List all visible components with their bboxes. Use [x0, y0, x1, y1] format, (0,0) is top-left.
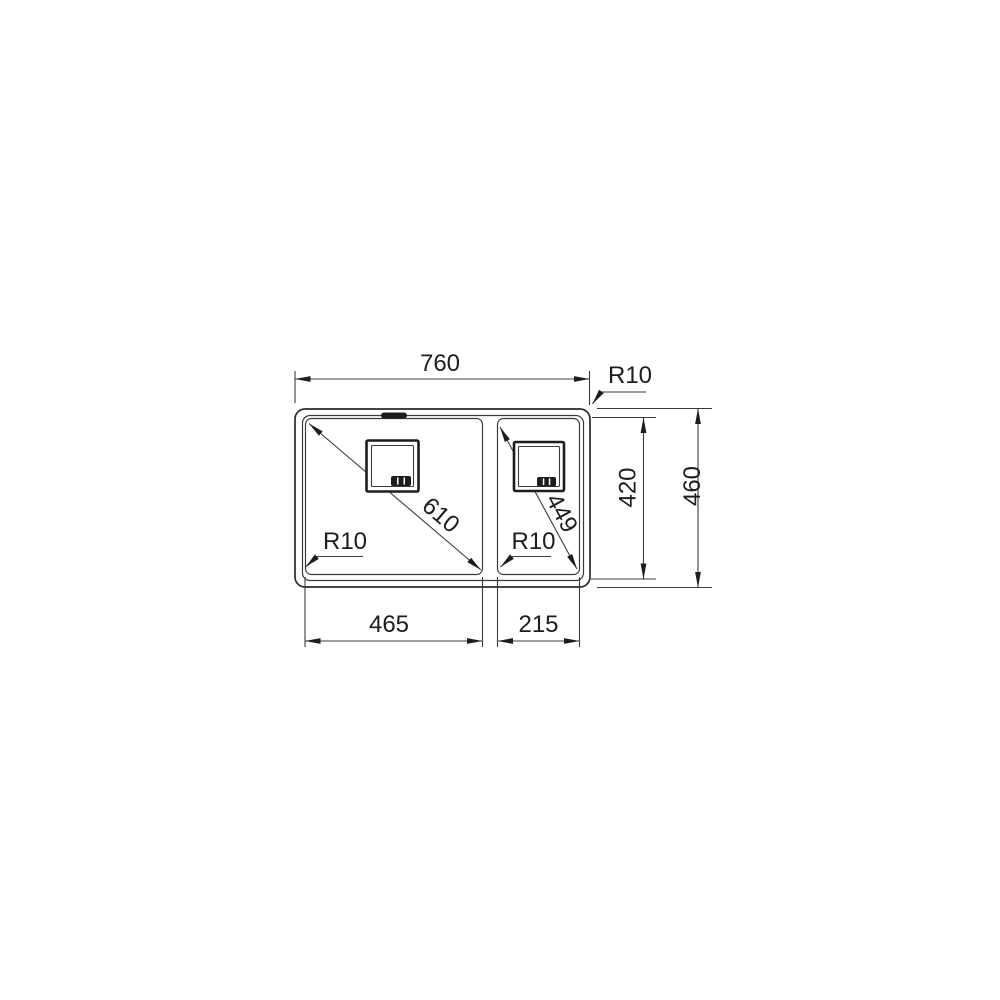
dim-overall-depth-text: 460: [679, 466, 706, 506]
right-bowl-radius-callout: R10: [501, 528, 556, 567]
left-drain-grate-icon: [391, 476, 411, 486]
dim-overall-width: 760: [295, 350, 590, 405]
left-drain-square: [367, 441, 419, 492]
right-drain-square: [514, 442, 564, 491]
leader-line: [501, 557, 552, 568]
right-grate-gap: [549, 478, 551, 485]
dim-overall-width-text: 760: [420, 350, 460, 377]
dim-bowl-depth: 420: [591, 418, 656, 580]
left-grate-gap: [404, 478, 406, 485]
right-bowl-radius-text: R10: [511, 528, 555, 555]
leader-line: [593, 392, 647, 404]
sink-rim-outline: [303, 416, 584, 581]
outer-corner-radius-callout: R10: [593, 362, 653, 404]
dim-bowl-depth-text: 420: [615, 467, 642, 507]
sink-technical-drawing: 760 R10 420 460 465: [0, 0, 1000, 1000]
right-drain-grate-icon: [537, 477, 556, 487]
left-bowl-diagonal-text: 610: [417, 492, 465, 539]
left-grate-gap: [397, 478, 399, 485]
right-grate-gap: [543, 478, 545, 485]
dim-left-bowl-width-text: 465: [369, 611, 409, 638]
overflow-slot: [381, 413, 407, 419]
outer-corner-radius-text: R10: [608, 362, 652, 389]
leader-line: [306, 557, 364, 568]
drawing-page: 760 R10 420 460 465: [0, 0, 1000, 1000]
dim-right-bowl-width-text: 215: [518, 611, 558, 638]
left-bowl-radius-text: R10: [323, 528, 367, 555]
left-bowl-radius-callout: R10: [306, 528, 368, 567]
